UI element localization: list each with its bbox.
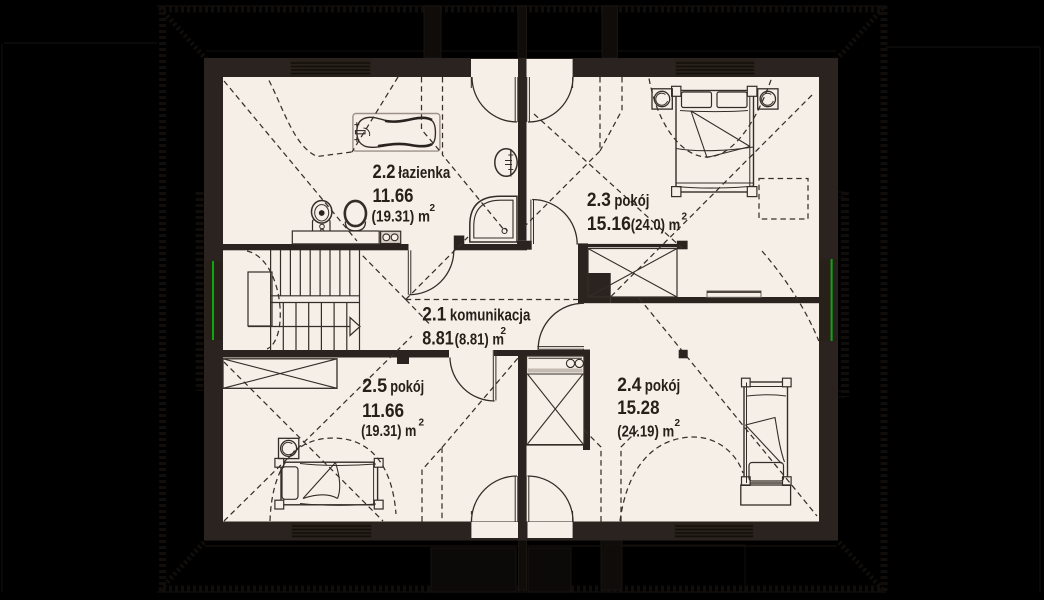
svg-text:2.5: 2.5: [362, 375, 387, 397]
svg-text:2: 2: [675, 418, 681, 429]
svg-text:11.66: 11.66: [373, 185, 414, 207]
svg-text:11.66: 11.66: [362, 400, 404, 422]
svg-text:(19.31) m: (19.31) m: [361, 423, 416, 440]
svg-text:(8.81) m: (8.81) m: [455, 332, 504, 349]
svg-text:(24.19) m: (24.19) m: [617, 424, 674, 441]
svg-text:2: 2: [430, 203, 436, 214]
svg-text:komunikacja: komunikacja: [450, 307, 531, 325]
svg-text:2: 2: [682, 212, 688, 223]
svg-text:(24.0) m: (24.0) m: [631, 217, 681, 234]
svg-text:2: 2: [501, 326, 507, 337]
svg-text:15.16: 15.16: [587, 213, 631, 235]
svg-text:pokój: pokój: [390, 378, 424, 396]
svg-text:2.2: 2.2: [373, 161, 396, 183]
svg-text:pokój: pokój: [645, 377, 680, 395]
svg-text:2: 2: [419, 418, 425, 429]
svg-text:łazienka: łazienka: [398, 164, 451, 182]
svg-text:(19.31) m: (19.31) m: [372, 209, 431, 226]
svg-text:2.1: 2.1: [422, 304, 446, 326]
svg-text:pokój: pokój: [614, 192, 649, 210]
svg-text:2.4: 2.4: [617, 374, 641, 396]
svg-text:2.3: 2.3: [587, 189, 611, 211]
svg-text:15.28: 15.28: [617, 397, 659, 419]
svg-text:8.81: 8.81: [422, 328, 454, 350]
